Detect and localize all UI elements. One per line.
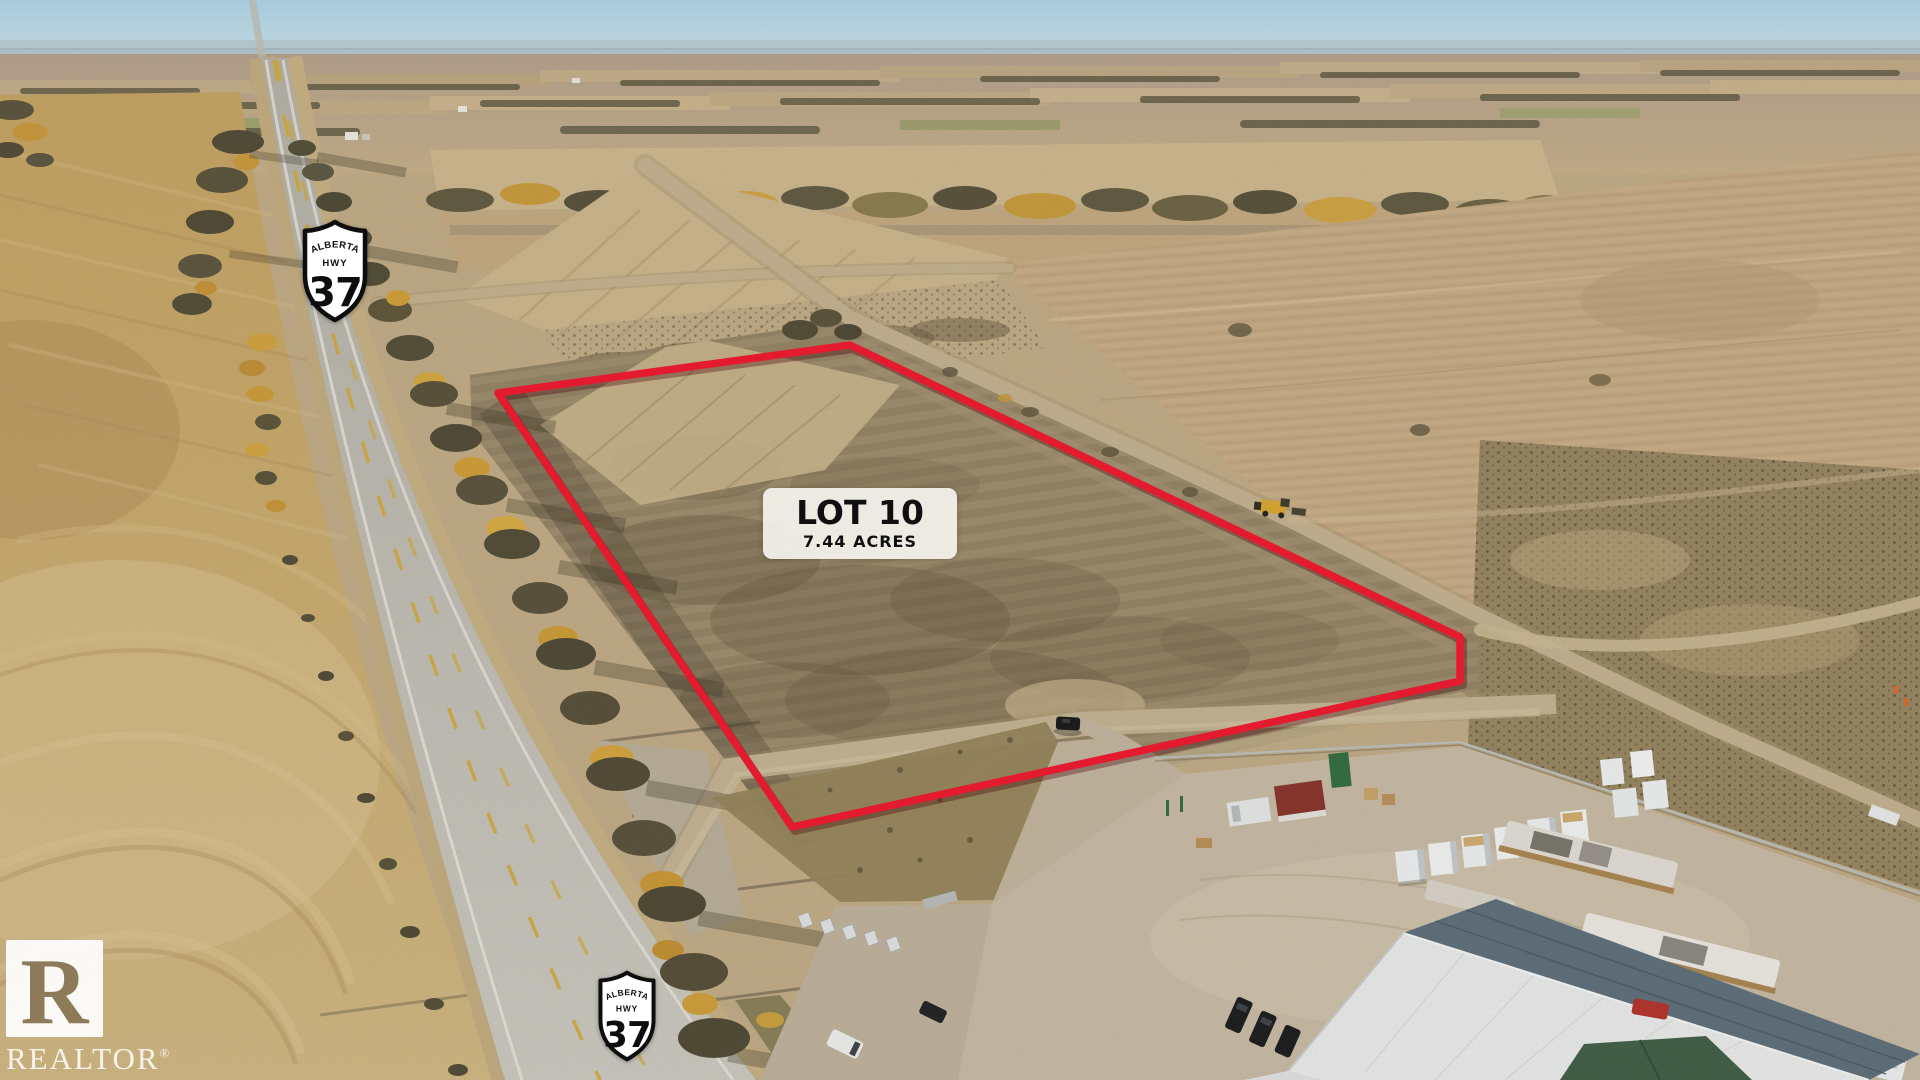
lot-title: LOT 10 (796, 496, 924, 529)
aerial-photo: LOT 10 7.44 ACRES ALBERTA HWY 37 ALBERTA… (0, 0, 1920, 1080)
shield-svg: ALBERTA HWY 37 (298, 219, 372, 323)
realtor-logo-letter: R (21, 945, 89, 1039)
realtor-logo-box: R (6, 940, 103, 1037)
highway-37-shield-top: ALBERTA HWY 37 (298, 219, 372, 323)
shield-road-type: HWY (322, 258, 347, 269)
shield-number: 37 (603, 1015, 650, 1056)
realtor-watermark: R REALTOR® (6, 940, 226, 1077)
realtor-text: REALTOR (6, 1041, 160, 1076)
photo-grain (0, 54, 1920, 1080)
registered-symbol: ® (160, 1046, 170, 1061)
landscape-svg (0, 0, 1920, 1080)
lot-acreage: 7.44 ACRES (803, 532, 917, 551)
lot-label: LOT 10 7.44 ACRES (763, 488, 957, 559)
realtor-wordmark: REALTOR® (6, 1041, 226, 1077)
shield-number: 37 (308, 270, 362, 316)
highway-37-shield-bottom: ALBERTA HWY 37 (594, 970, 660, 1062)
shield-svg: ALBERTA HWY 37 (594, 970, 660, 1062)
sky (0, 0, 1920, 62)
shield-road-type: HWY (616, 1004, 638, 1014)
